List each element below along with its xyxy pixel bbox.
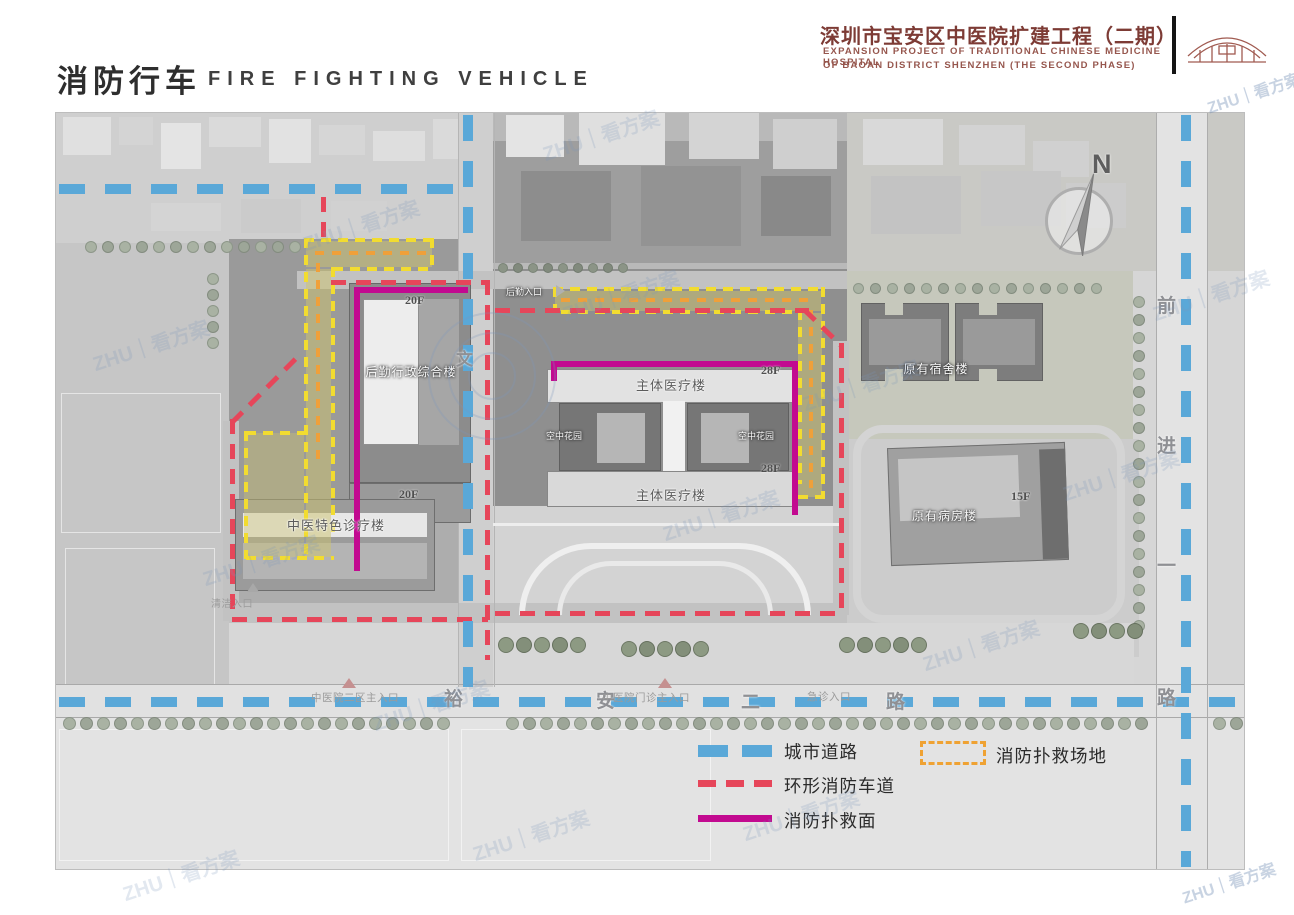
tree-icon bbox=[187, 241, 199, 253]
tree-icon bbox=[1133, 350, 1145, 362]
fire-lane-dash bbox=[495, 308, 809, 313]
tree-icon bbox=[1213, 717, 1226, 730]
tree-icon bbox=[148, 717, 161, 730]
tree-icon bbox=[1074, 283, 1085, 294]
forecourt-arc bbox=[557, 561, 773, 615]
tree-icon bbox=[639, 641, 655, 657]
tree-icon bbox=[1133, 584, 1145, 596]
tree-icon bbox=[693, 641, 709, 657]
tree-icon bbox=[513, 263, 523, 273]
tree-icon bbox=[893, 637, 909, 653]
tree-icon bbox=[284, 717, 297, 730]
north-label: N bbox=[1092, 149, 1112, 180]
tree-icon bbox=[207, 289, 219, 301]
tree-row bbox=[207, 273, 219, 349]
floor-label-main-north: 28F bbox=[761, 363, 780, 378]
tree-icon bbox=[1133, 440, 1145, 452]
legend-swatch-rescue-site bbox=[920, 741, 986, 765]
rescue-site-dash bbox=[333, 267, 433, 271]
tree-icon bbox=[1016, 717, 1029, 730]
tree-row bbox=[1213, 717, 1243, 730]
tree-icon bbox=[857, 637, 873, 653]
tree-icon bbox=[1133, 296, 1145, 308]
tree-icon bbox=[506, 717, 519, 730]
tree-icon bbox=[573, 263, 583, 273]
tree-icon bbox=[199, 717, 212, 730]
map-block bbox=[963, 319, 1035, 365]
tree-icon bbox=[63, 717, 76, 730]
map-block bbox=[59, 251, 224, 381]
entrance-arrow-icon bbox=[556, 285, 565, 297]
tree-icon bbox=[221, 241, 233, 253]
tree-icon bbox=[846, 717, 859, 730]
tree-icon bbox=[267, 717, 280, 730]
rescue-site-dash bbox=[821, 287, 825, 499]
road-char-east-3: 一 bbox=[1157, 551, 1176, 578]
tree-row bbox=[839, 637, 927, 653]
map-block bbox=[871, 176, 961, 234]
entrance-arrow-icon bbox=[658, 678, 672, 688]
floor-label-admin-bottom: 20F bbox=[399, 487, 418, 502]
tree-icon bbox=[675, 641, 691, 657]
project-title: 深圳市宝安区中医院扩建工程（二期） bbox=[820, 20, 1168, 49]
label-tcm-clinic: 中医特色诊疗楼 bbox=[248, 515, 424, 534]
tree-icon bbox=[931, 717, 944, 730]
tree-icon bbox=[369, 717, 382, 730]
tree-icon bbox=[238, 241, 250, 253]
map-block bbox=[959, 125, 1025, 165]
fire-lane-dash bbox=[839, 343, 844, 615]
tree-row bbox=[1133, 296, 1145, 632]
tree-icon bbox=[1101, 717, 1114, 730]
map-block bbox=[56, 684, 1244, 685]
tree-icon bbox=[386, 717, 399, 730]
label-entrance-logistics: 后勤入口 bbox=[506, 285, 542, 298]
tree-row bbox=[853, 283, 1102, 294]
tree-icon bbox=[972, 283, 983, 294]
rescue-site-dash bbox=[304, 238, 308, 560]
tree-icon bbox=[97, 717, 110, 730]
rescue-site-dash bbox=[553, 287, 825, 291]
tree-icon bbox=[570, 637, 586, 653]
tree-icon bbox=[437, 717, 450, 730]
label-main-medical-south: 主体医疗楼 bbox=[547, 485, 795, 504]
fire-lane-dash bbox=[485, 280, 490, 660]
rescue-site-dash bbox=[430, 238, 434, 270]
road-char-south-1: 裕 bbox=[444, 684, 463, 711]
tree-icon bbox=[233, 717, 246, 730]
tree-icon bbox=[403, 717, 416, 730]
tree-icon bbox=[1073, 623, 1089, 639]
presentation-board: 消防行车 FIRE FIGHTING VEHICLE 深圳市宝安区中医院扩建工程… bbox=[0, 0, 1294, 915]
tree-row bbox=[498, 263, 628, 273]
tree-icon bbox=[911, 637, 927, 653]
tree-icon bbox=[863, 717, 876, 730]
map-block bbox=[521, 171, 611, 241]
map-block bbox=[269, 119, 311, 163]
tree-icon bbox=[1127, 623, 1143, 639]
tree-icon bbox=[761, 717, 774, 730]
rescue-site-dash bbox=[798, 495, 825, 499]
tree-icon bbox=[207, 321, 219, 333]
map-block bbox=[65, 548, 215, 688]
tree-icon bbox=[131, 717, 144, 730]
legend-label-rescue-face: 消防扑救面 bbox=[784, 808, 877, 833]
rescue-site-dash bbox=[244, 431, 248, 559]
tree-icon bbox=[216, 717, 229, 730]
tree-icon bbox=[839, 637, 855, 653]
tree-icon bbox=[897, 717, 910, 730]
tree-icon bbox=[1133, 476, 1145, 488]
map-block bbox=[61, 393, 221, 533]
map-block bbox=[869, 319, 941, 365]
road-char-east-4: 路 bbox=[1157, 683, 1176, 710]
legend-swatch-city-road bbox=[698, 745, 772, 757]
map-block bbox=[863, 119, 943, 165]
map-block bbox=[331, 201, 387, 231]
tree-icon bbox=[498, 263, 508, 273]
tree-row bbox=[621, 641, 709, 657]
tree-icon bbox=[1133, 368, 1145, 380]
city-road-dash bbox=[463, 115, 473, 687]
map-block bbox=[1156, 113, 1157, 869]
map-block bbox=[71, 201, 131, 231]
tree-icon bbox=[1006, 283, 1017, 294]
tree-icon bbox=[207, 273, 219, 285]
tree-icon bbox=[618, 263, 628, 273]
site-plan: 20F 后勤行政综合楼 20F 中医特色诊疗楼 主体医疗楼 28F 主体医疗楼 … bbox=[55, 112, 1245, 870]
tree-icon bbox=[657, 641, 673, 657]
tree-icon bbox=[182, 717, 195, 730]
map-block bbox=[461, 729, 711, 861]
tree-icon bbox=[914, 717, 927, 730]
city-road-dash bbox=[59, 184, 463, 194]
orange-center-dash bbox=[316, 263, 320, 463]
tree-icon bbox=[301, 717, 314, 730]
north-arrow-icon bbox=[1051, 168, 1111, 268]
tree-icon bbox=[659, 717, 672, 730]
tree-icon bbox=[516, 637, 532, 653]
road-char-west: 文 bbox=[456, 345, 473, 370]
tree-icon bbox=[955, 283, 966, 294]
label-main-medical-north: 主体医疗楼 bbox=[547, 375, 795, 394]
map-block bbox=[773, 119, 837, 169]
tree-icon bbox=[1118, 717, 1131, 730]
tree-icon bbox=[1067, 717, 1080, 730]
tree-icon bbox=[875, 637, 891, 653]
page-title-cn: 消防行车 bbox=[57, 56, 201, 101]
floor-label-admin-top: 20F bbox=[405, 293, 424, 308]
tree-icon bbox=[621, 641, 637, 657]
tree-icon bbox=[558, 263, 568, 273]
map-block bbox=[689, 113, 759, 159]
tree-icon bbox=[693, 717, 706, 730]
entrance-arrow-icon bbox=[342, 678, 356, 688]
map-block bbox=[641, 166, 741, 246]
tree-icon bbox=[102, 241, 114, 253]
tree-row bbox=[498, 637, 586, 653]
label-existing-dormitory: 原有宿舍楼 bbox=[876, 360, 996, 377]
tree-icon bbox=[250, 717, 263, 730]
roof-pavilion-logo-icon bbox=[1184, 16, 1270, 79]
tree-row bbox=[506, 717, 1148, 730]
label-sky-garden-west: 空中花园 bbox=[546, 429, 582, 442]
road-char-south-3: 二 bbox=[741, 687, 760, 714]
tree-icon bbox=[1091, 623, 1107, 639]
map-block bbox=[119, 117, 153, 145]
tree-icon bbox=[853, 283, 864, 294]
map-block bbox=[151, 203, 221, 231]
tree-icon bbox=[948, 717, 961, 730]
tree-icon bbox=[982, 717, 995, 730]
tree-icon bbox=[1040, 283, 1051, 294]
tree-icon bbox=[1109, 623, 1125, 639]
map-block bbox=[161, 123, 201, 169]
tree-icon bbox=[870, 283, 881, 294]
tree-icon bbox=[255, 241, 267, 253]
rescue-site-dash bbox=[798, 310, 802, 484]
map-block bbox=[209, 117, 261, 147]
existing-ring-road bbox=[853, 425, 1125, 623]
map-block bbox=[433, 119, 461, 159]
tree-icon bbox=[207, 305, 219, 317]
fire-lane-dash bbox=[230, 419, 235, 619]
tree-icon bbox=[710, 717, 723, 730]
map-block bbox=[885, 301, 903, 315]
tree-icon bbox=[904, 283, 915, 294]
tree-icon bbox=[170, 241, 182, 253]
tree-icon bbox=[642, 717, 655, 730]
tree-icon bbox=[136, 241, 148, 253]
tree-icon bbox=[119, 241, 131, 253]
label-entrance-cleaning: 清洁入口 bbox=[211, 595, 253, 610]
tree-icon bbox=[999, 717, 1012, 730]
tree-icon bbox=[1091, 283, 1102, 294]
tree-icon bbox=[1050, 717, 1063, 730]
floor-label-main-south: 28F bbox=[761, 461, 780, 476]
legend-label-fire-lane: 环形消防车道 bbox=[784, 773, 895, 798]
forecourt-path bbox=[493, 523, 843, 526]
tree-icon bbox=[1133, 530, 1145, 542]
label-existing-ward: 原有病房楼 bbox=[912, 507, 977, 524]
tree-icon bbox=[289, 241, 301, 253]
tree-icon bbox=[795, 717, 808, 730]
rescue-site-dash bbox=[304, 238, 434, 242]
tree-icon bbox=[829, 717, 842, 730]
tree-icon bbox=[552, 637, 568, 653]
tree-icon bbox=[1133, 314, 1145, 326]
tree-icon bbox=[1135, 717, 1148, 730]
tree-icon bbox=[335, 717, 348, 730]
tree-row bbox=[85, 241, 301, 253]
map-block bbox=[63, 117, 111, 155]
tree-row bbox=[1073, 623, 1143, 639]
label-entrance-outpatient: 中医院门诊主入口 bbox=[602, 690, 690, 705]
tree-icon bbox=[1133, 332, 1145, 344]
header-divider bbox=[1172, 16, 1176, 74]
map-block bbox=[59, 729, 449, 861]
orange-center-dash bbox=[561, 298, 813, 302]
tree-icon bbox=[1133, 458, 1145, 470]
tree-icon bbox=[528, 263, 538, 273]
tree-icon bbox=[603, 263, 613, 273]
legend-swatch-rescue-face bbox=[698, 815, 772, 822]
label-entrance-district2: 中医院二区主入口 bbox=[311, 690, 399, 705]
road-char-east-1: 前 bbox=[1157, 291, 1176, 318]
project-subtitle-line2: OF BAOAN DISTRICT SHENZHEN (THE SECOND P… bbox=[823, 60, 1171, 71]
tree-icon bbox=[543, 263, 553, 273]
page-title-en: FIRE FIGHTING VEHICLE bbox=[208, 68, 594, 91]
tree-icon bbox=[812, 717, 825, 730]
tree-icon bbox=[1057, 283, 1068, 294]
tree-icon bbox=[588, 263, 598, 273]
tree-icon bbox=[165, 717, 178, 730]
tree-icon bbox=[778, 717, 791, 730]
tree-icon bbox=[989, 283, 1000, 294]
map-block bbox=[579, 113, 665, 165]
tree-icon bbox=[1023, 283, 1034, 294]
tree-icon bbox=[114, 717, 127, 730]
tree-row bbox=[63, 717, 450, 730]
legend-swatch-fire-lane bbox=[698, 780, 772, 787]
tree-icon bbox=[420, 717, 433, 730]
fire-lane-dash bbox=[321, 197, 326, 237]
road-char-south-4: 路 bbox=[886, 687, 905, 714]
tree-icon bbox=[625, 717, 638, 730]
tree-icon bbox=[204, 241, 216, 253]
tree-icon bbox=[1133, 512, 1145, 524]
tree-icon bbox=[727, 717, 740, 730]
label-entrance-emergency: 急诊入口 bbox=[807, 689, 851, 704]
tree-icon bbox=[574, 717, 587, 730]
tree-icon bbox=[1133, 602, 1145, 614]
tree-icon bbox=[887, 283, 898, 294]
entrance-arrow-icon bbox=[247, 583, 259, 592]
tree-icon bbox=[85, 241, 97, 253]
orange-center-dash bbox=[809, 310, 813, 488]
tree-icon bbox=[965, 717, 978, 730]
tree-icon bbox=[498, 637, 514, 653]
tree-icon bbox=[676, 717, 689, 730]
tree-icon bbox=[921, 283, 932, 294]
tree-icon bbox=[1033, 717, 1046, 730]
tree-icon bbox=[938, 283, 949, 294]
map-block bbox=[979, 301, 997, 315]
map-block bbox=[597, 413, 645, 463]
tree-icon bbox=[153, 241, 165, 253]
tree-icon bbox=[318, 717, 331, 730]
rescue-site-dash bbox=[246, 556, 334, 560]
tree-icon bbox=[540, 717, 553, 730]
tree-icon bbox=[207, 337, 219, 349]
tree-icon bbox=[1133, 386, 1145, 398]
map-block bbox=[241, 199, 301, 233]
map-block bbox=[494, 113, 495, 687]
tree-icon bbox=[352, 717, 365, 730]
tree-icon bbox=[534, 637, 550, 653]
tree-icon bbox=[1133, 548, 1145, 560]
label-sky-garden-east: 空中花园 bbox=[738, 429, 774, 442]
map-block bbox=[319, 125, 365, 155]
tree-icon bbox=[1133, 494, 1145, 506]
tree-icon bbox=[1133, 404, 1145, 416]
tree-icon bbox=[1084, 717, 1097, 730]
floor-label-ward: 15F bbox=[1011, 489, 1030, 504]
map-block bbox=[1207, 113, 1208, 869]
rescue-site-dash bbox=[331, 267, 335, 537]
tree-icon bbox=[1133, 566, 1145, 578]
map-block bbox=[506, 115, 564, 157]
legend-label-rescue-site: 消防扑救场地 bbox=[996, 743, 1107, 768]
tree-icon bbox=[1133, 422, 1145, 434]
tree-icon bbox=[557, 717, 570, 730]
map-block bbox=[761, 176, 831, 236]
road-char-east-2: 进 bbox=[1157, 431, 1176, 458]
rescue-site-dash bbox=[246, 431, 306, 435]
fire-lane-dash bbox=[495, 611, 843, 616]
tree-icon bbox=[523, 717, 536, 730]
rescue-area-fill bbox=[244, 433, 304, 557]
tree-icon bbox=[80, 717, 93, 730]
tree-icon bbox=[608, 717, 621, 730]
legend-label-city-road: 城市道路 bbox=[784, 739, 858, 764]
tree-icon bbox=[880, 717, 893, 730]
tree-icon bbox=[1230, 717, 1243, 730]
city-road-dash bbox=[1181, 115, 1191, 867]
tree-icon bbox=[591, 717, 604, 730]
tree-icon bbox=[744, 717, 757, 730]
tree-icon bbox=[272, 241, 284, 253]
map-block bbox=[373, 131, 425, 161]
orange-center-dash bbox=[315, 251, 427, 255]
fire-lane-dash bbox=[232, 617, 488, 622]
